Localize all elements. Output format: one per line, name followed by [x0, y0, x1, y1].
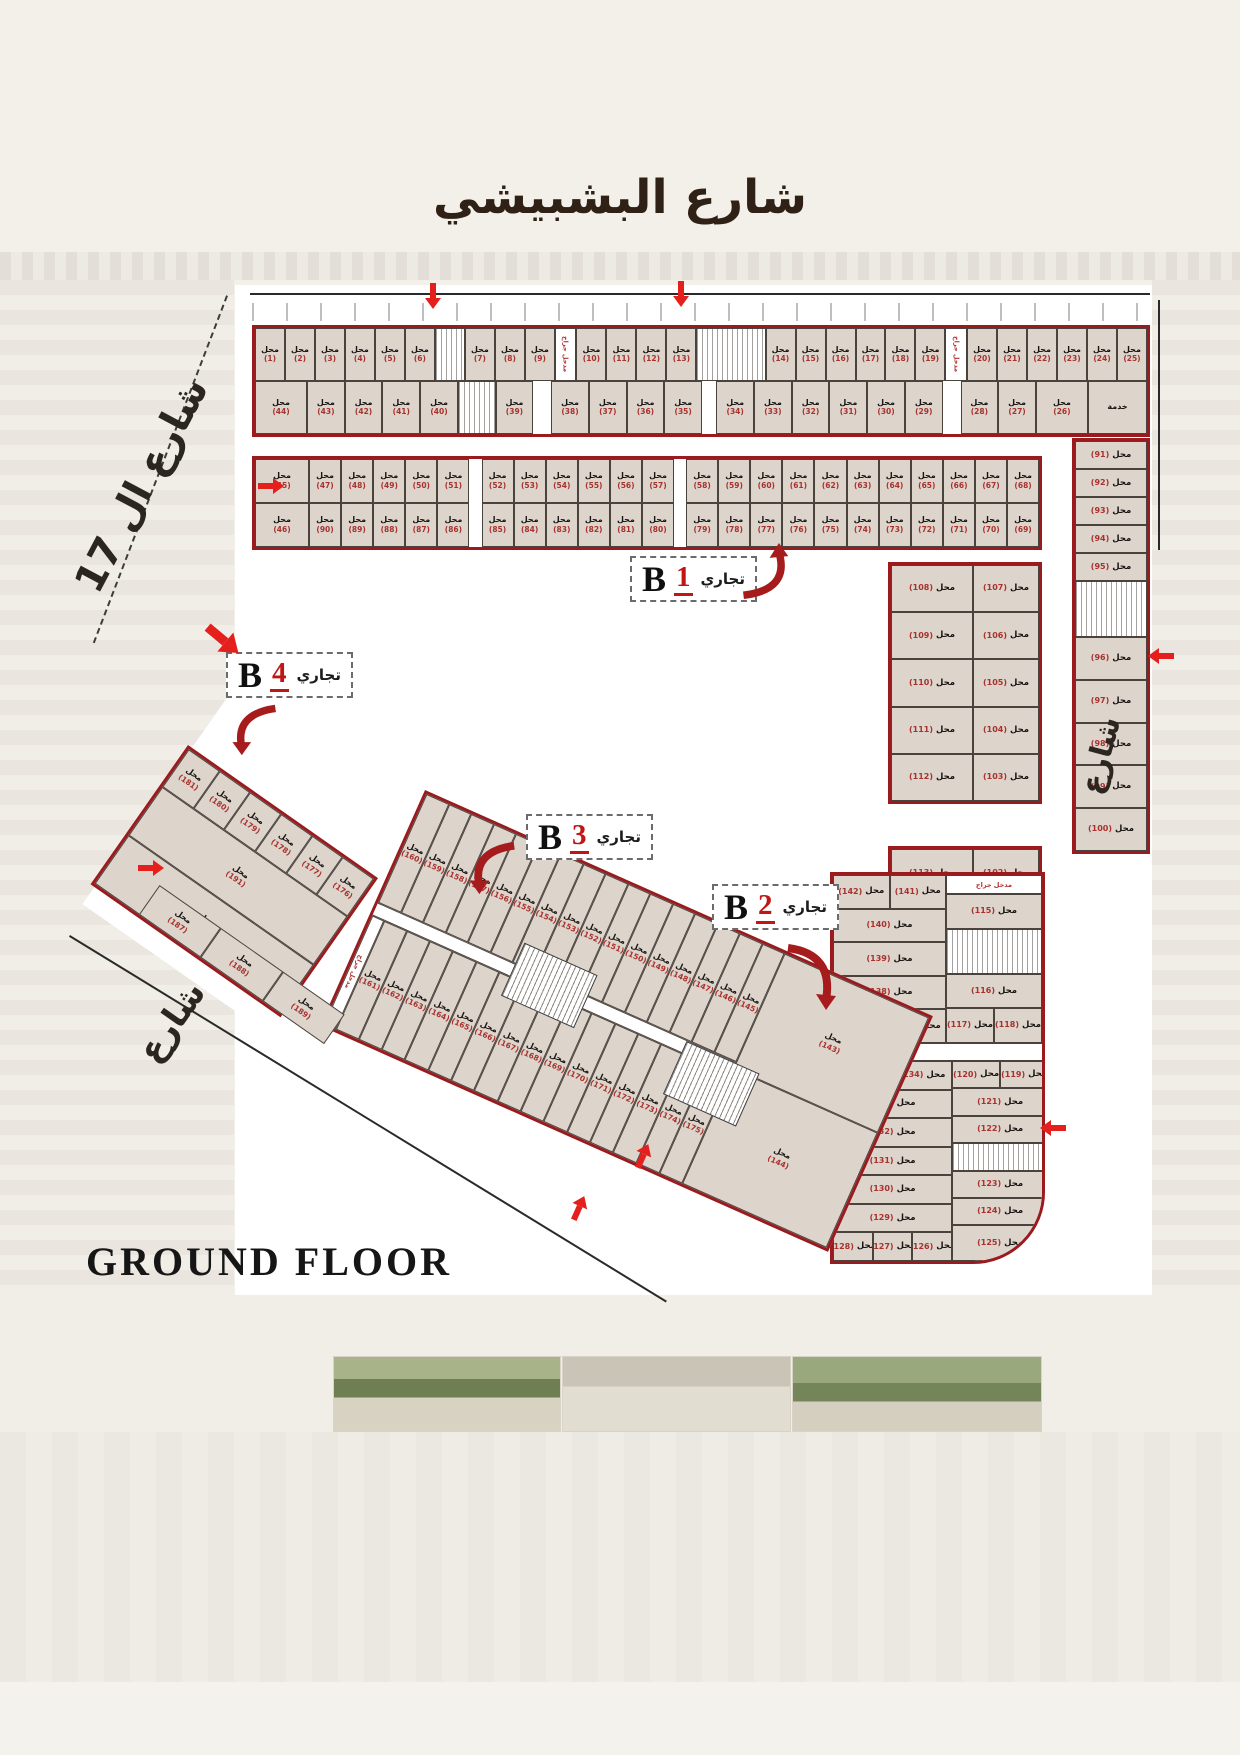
- shop-number: (9): [534, 355, 546, 363]
- shop-label: محل: [348, 516, 366, 524]
- shop-unit: محل(88): [373, 503, 405, 547]
- shop-label: محل: [982, 516, 1000, 524]
- shop-number: (90): [316, 526, 333, 534]
- shop-number: (142): [838, 888, 862, 896]
- shop-unit: (118)محل: [994, 1008, 1042, 1043]
- shop-number: (5): [384, 355, 396, 363]
- shop-label: محل: [317, 399, 335, 407]
- shop-number: (106): [983, 632, 1007, 640]
- shop-unit: (128)محل: [833, 1232, 873, 1261]
- shop-number: (109): [909, 632, 933, 640]
- shop-label: محل: [1014, 516, 1032, 524]
- shop-number: (34): [727, 408, 744, 416]
- shop-label: محل: [291, 346, 309, 354]
- shop-unit: محل(49): [373, 459, 405, 503]
- shop-label: محل: [392, 399, 410, 407]
- shop-number: (78): [726, 526, 743, 534]
- shop-unit: محل(32): [792, 381, 830, 434]
- shop-label: محل: [649, 516, 667, 524]
- shop-label: محل: [1093, 346, 1111, 354]
- shop-label: محل: [894, 955, 913, 964]
- shop-number: (56): [617, 482, 634, 490]
- strip-row: (140)محل: [833, 909, 946, 943]
- shop-number: (93): [1091, 507, 1109, 515]
- curved-arrow-icon: [782, 938, 842, 1012]
- shop-label: محل: [857, 1242, 873, 1251]
- shop-label: محل: [1033, 346, 1051, 354]
- shop-unit: (110)محل: [891, 659, 973, 706]
- shop-unit: محل(58): [686, 459, 718, 503]
- shop-unit: (115)محل: [946, 894, 1042, 929]
- shop-label: محل: [553, 472, 571, 480]
- shop-label: محل: [585, 516, 603, 524]
- strip-row: (110)محل(105)محل: [891, 659, 1039, 706]
- shop-unit: محل(34): [716, 381, 754, 434]
- shop-label: محل: [897, 1185, 916, 1194]
- shop-label: محل: [725, 516, 743, 524]
- block-number: 1: [674, 562, 693, 595]
- shop-number: (23): [1063, 355, 1080, 363]
- shop-number: (57): [649, 482, 666, 490]
- strip-row: (124)محل: [952, 1198, 1045, 1225]
- shop-number: (46): [273, 526, 290, 534]
- shop-number: (17): [862, 355, 879, 363]
- shop-label: محل: [1022, 1021, 1041, 1030]
- shop-unit: محل(12): [636, 328, 666, 381]
- shop-number: (80): [649, 526, 666, 534]
- shop-label: محل: [789, 516, 807, 524]
- shop-label: محل: [693, 472, 711, 480]
- shop-unit: محل(37): [589, 381, 627, 434]
- service-unit: خدمة: [1088, 381, 1147, 434]
- shop-unit: محل(59): [718, 459, 750, 503]
- shop-unit: محل(55): [578, 459, 610, 503]
- shop-unit: محل(43): [307, 381, 345, 434]
- strip-row: (139)محل: [833, 942, 946, 976]
- strip-row: مدخل جراج: [946, 875, 1042, 894]
- shop-label: محل: [489, 472, 507, 480]
- shop-label: محل: [854, 516, 872, 524]
- shop-unit: محل(75): [814, 503, 846, 547]
- shop-number: (15): [802, 355, 819, 363]
- block-b1-front-bar: محل(1)محل(2)محل(3)محل(4)محل(5)محل(6)محل(…: [252, 325, 1150, 437]
- shop-number: (108): [909, 584, 933, 592]
- shop-label: محل: [1004, 1239, 1023, 1248]
- footer-band: [0, 1682, 1240, 1755]
- shop-number: (52): [489, 482, 506, 490]
- shop-unit: محل(41): [382, 381, 420, 434]
- shop-number: (21): [1003, 355, 1020, 363]
- shop-label: محل: [617, 516, 635, 524]
- shop-unit: (108)محل: [891, 565, 973, 612]
- shop-unit: محل(64): [879, 459, 911, 503]
- shop-number: (126): [912, 1243, 933, 1251]
- shop-unit: محل(16): [826, 328, 856, 381]
- shop-number: (18): [892, 355, 909, 363]
- shop-label: محل: [936, 726, 955, 735]
- shop-number: (86): [445, 526, 462, 534]
- shop-number: (70): [982, 526, 999, 534]
- shop-number: (105): [983, 679, 1007, 687]
- shop-label: محل: [772, 346, 790, 354]
- shop-label: محل: [316, 516, 334, 524]
- entrance-arrow-icon: [258, 478, 284, 494]
- block-type: تجاري: [597, 828, 641, 846]
- shop-label: محل: [1123, 346, 1141, 354]
- street-name-top: شارع البشبيشي: [0, 170, 1240, 225]
- shop-number: (110): [909, 679, 933, 687]
- strip-row: (123)محل: [952, 1171, 1045, 1198]
- shop-unit: محل(70): [975, 503, 1007, 547]
- shop-label: محل: [936, 584, 955, 593]
- shop-label: محل: [918, 472, 936, 480]
- shop-unit: (93)محل: [1075, 497, 1147, 525]
- curved-arrow-icon: [462, 838, 520, 896]
- shop-number: (125): [977, 1239, 1001, 1247]
- shop-unit: (127)محل: [873, 1232, 913, 1261]
- shop-number: (54): [553, 482, 570, 490]
- strip-row: (94)محل: [1075, 525, 1147, 553]
- shop-label: محل: [444, 472, 462, 480]
- shop-number: (42): [355, 408, 372, 416]
- block-letter: B: [642, 561, 666, 597]
- shop-unit: محل(24): [1087, 328, 1117, 381]
- shop-number: (53): [521, 482, 538, 490]
- shop-number: (127): [873, 1243, 894, 1251]
- shop-unit: محل(56): [610, 459, 642, 503]
- shop-unit: محل(67): [975, 459, 1007, 503]
- open-gap: [674, 503, 686, 547]
- label-block-b4: B 4 تجاري: [226, 652, 353, 698]
- shop-number: (119): [1001, 1071, 1025, 1079]
- shop-number: (95): [1091, 563, 1109, 571]
- shop-unit: محل(79): [686, 503, 718, 547]
- stair-core: [435, 328, 465, 381]
- shop-number: (66): [950, 482, 967, 490]
- street-band-right: [1152, 280, 1240, 1340]
- shop-label: محل: [553, 516, 571, 524]
- shop-label: محل: [672, 346, 690, 354]
- shop-number: (22): [1033, 355, 1050, 363]
- shop-unit: محل(47): [309, 459, 341, 503]
- strip-row: [952, 1143, 1045, 1170]
- shop-number: (116): [971, 987, 995, 995]
- shop-label: محل: [674, 399, 692, 407]
- render-band: [0, 1432, 1240, 1682]
- strip-row: (117)محل(118)محل: [946, 1008, 1042, 1043]
- shop-unit: محل(89): [341, 503, 373, 547]
- shop-number: (49): [381, 482, 398, 490]
- shop-number: (94): [1091, 535, 1109, 543]
- shop-label: محل: [950, 472, 968, 480]
- entrance-arrow-icon: [673, 281, 689, 307]
- b2-bottom-right-rows: (120)محل(119)محل(121)محل(122)محل(123)محل…: [952, 1061, 1045, 1261]
- shop-label: محل: [974, 1021, 993, 1030]
- shop-number: (121): [977, 1098, 1001, 1106]
- shop-label: محل: [757, 516, 775, 524]
- strip-row: (108)محل(107)محل: [891, 565, 1039, 612]
- shop-unit: محل(5): [375, 328, 405, 381]
- stair-core: [696, 328, 765, 381]
- shop-number: (59): [726, 482, 743, 490]
- shop-unit: محل(50): [405, 459, 437, 503]
- shop-unit: (139)محل: [833, 942, 946, 976]
- shop-label: محل: [1004, 1207, 1023, 1216]
- shop-label: محل: [973, 346, 991, 354]
- strip-row: (120)محل(119)محل: [952, 1061, 1045, 1088]
- b2-top-right-rows: مدخل جراج(115)محل(116)محل(117)محل(118)مح…: [946, 875, 1042, 1043]
- shop-unit: محل(87): [405, 503, 437, 547]
- shop-label: محل: [471, 346, 489, 354]
- entrance-arrow-icon: [1148, 648, 1174, 664]
- shop-number: (89): [348, 526, 365, 534]
- shop-label: محل: [1112, 535, 1131, 544]
- shop-number: (2): [294, 355, 306, 363]
- shop-unit: محل(82): [578, 503, 610, 547]
- shop-number: (55): [585, 482, 602, 490]
- shop-unit: محل(13): [666, 328, 696, 381]
- shop-unit: (116)محل: [946, 974, 1042, 1009]
- shop-unit: محل(72): [911, 503, 943, 547]
- shop-number: (29): [915, 408, 932, 416]
- shop-unit: (95)محل: [1075, 553, 1147, 581]
- shop-unit: محل(19): [915, 328, 945, 381]
- shop-unit: محل(63): [847, 459, 879, 503]
- block-number: 2: [756, 890, 775, 923]
- block-number: 4: [270, 658, 289, 691]
- shop-label: محل: [894, 988, 913, 997]
- shop-label: محل: [877, 399, 895, 407]
- shop-number: (62): [822, 482, 839, 490]
- shop-unit: محل(38): [551, 381, 589, 434]
- shop-label: محل: [1004, 1125, 1023, 1134]
- shop-label: محل: [897, 1157, 916, 1166]
- shop-label: محل: [1010, 679, 1029, 688]
- shop-label: محل: [854, 472, 872, 480]
- shop-unit: محل(66): [943, 459, 975, 503]
- shop-label: محل: [599, 399, 617, 407]
- shop-unit: (140)محل: [833, 909, 946, 943]
- shop-unit: محل(40): [420, 381, 458, 434]
- shop-number: (82): [585, 526, 602, 534]
- shop-unit: محل(27): [998, 381, 1036, 434]
- shop-label: محل: [897, 1242, 913, 1251]
- shop-number: (124): [977, 1207, 1001, 1215]
- shop-number: (48): [348, 482, 365, 490]
- shop-label: محل: [272, 399, 290, 407]
- strip-row: (92)محل: [1075, 469, 1147, 497]
- strip-row: (112)محل(103)محل: [891, 754, 1039, 801]
- shop-number: (20): [973, 355, 990, 363]
- shop-label: محل: [412, 472, 430, 480]
- shop-unit: محل(8): [495, 328, 525, 381]
- shop-unit: محل(69): [1007, 503, 1039, 547]
- shop-number: (37): [599, 408, 616, 416]
- shop-unit: (94)محل: [1075, 525, 1147, 553]
- shop-label: محل: [637, 399, 655, 407]
- shop-number: (44): [272, 408, 289, 416]
- shop-unit: (141)محل: [890, 875, 947, 909]
- shop-label: محل: [802, 399, 820, 407]
- shop-unit: محل(86): [437, 503, 469, 547]
- shop-label: محل: [380, 516, 398, 524]
- shop-number: (103): [983, 773, 1007, 781]
- stair-core: [946, 929, 1042, 974]
- shop-unit: محل(84): [514, 503, 546, 547]
- shop-label: محل: [832, 346, 850, 354]
- shop-number: (122): [977, 1125, 1001, 1133]
- strip-row: محل(46): [255, 503, 309, 547]
- strip-row: (111)محل(104)محل: [891, 707, 1039, 754]
- open-gap: [702, 381, 716, 434]
- shop-unit: محل(2): [285, 328, 315, 381]
- open-gap: [469, 503, 481, 547]
- strip-row: (115)محل: [946, 894, 1042, 929]
- shop-label: محل: [1112, 563, 1131, 572]
- shop-label: محل: [1112, 782, 1131, 791]
- shop-label: محل: [1063, 346, 1081, 354]
- shop-number: (100): [1088, 825, 1112, 833]
- shop-unit: محل(1): [255, 328, 285, 381]
- shop-unit: (96)محل: [1075, 637, 1147, 680]
- shop-label: محل: [950, 516, 968, 524]
- shop-number: (115): [971, 907, 995, 915]
- shop-unit: محل(81): [610, 503, 642, 547]
- shop-unit: محل(73): [879, 503, 911, 547]
- shop-unit: (142)محل: [833, 875, 890, 909]
- shop-unit: محل(48): [341, 459, 373, 503]
- strip-row: (129)محل: [833, 1204, 952, 1233]
- shop-unit: محل(60): [750, 459, 782, 503]
- shop-label: محل: [348, 472, 366, 480]
- shop-unit: (105)محل: [973, 659, 1039, 706]
- shop-number: (120): [953, 1071, 977, 1079]
- shop-unit: (123)محل: [952, 1171, 1045, 1198]
- shop-number: (85): [489, 526, 506, 534]
- shop-number: (117): [947, 1021, 971, 1029]
- shop-unit: محل(30): [867, 381, 905, 434]
- shop-label: محل: [726, 399, 744, 407]
- shop-label: محل: [501, 346, 519, 354]
- shop-label: محل: [789, 472, 807, 480]
- shop-unit: محل(52): [482, 459, 514, 503]
- shop-label: محل: [521, 472, 539, 480]
- shop-number: (68): [1014, 482, 1031, 490]
- shop-number: (11): [613, 355, 630, 363]
- shop-number: (81): [617, 526, 634, 534]
- shop-unit: محل(57): [642, 459, 674, 503]
- shop-number: (36): [637, 408, 654, 416]
- shop-number: (128): [833, 1243, 854, 1251]
- shop-unit: (112)محل: [891, 754, 973, 801]
- shop-number: (1): [264, 355, 276, 363]
- curved-arrow-icon: [736, 540, 792, 602]
- shop-unit: (126)محل: [912, 1232, 952, 1261]
- block-letter: B: [538, 819, 562, 855]
- shop-label: محل: [886, 516, 904, 524]
- shop-number: (50): [413, 482, 430, 490]
- shop-label: محل: [617, 472, 635, 480]
- block-type: تجاري: [783, 898, 827, 916]
- shop-label: محل: [506, 399, 524, 407]
- shop-unit: محل(54): [546, 459, 578, 503]
- shop-label: محل: [822, 472, 840, 480]
- shop-unit: (121)محل: [952, 1088, 1045, 1115]
- shop-unit: محل(10): [576, 328, 606, 381]
- shop-label: محل: [521, 516, 539, 524]
- shop-number: (33): [764, 408, 781, 416]
- shop-unit: محل(42): [345, 381, 383, 434]
- shop-number: (13): [673, 355, 690, 363]
- shop-unit: محل(62): [814, 459, 846, 503]
- shop-label: محل: [1112, 479, 1131, 488]
- shop-label: محل: [261, 346, 279, 354]
- shop-unit: محل(90): [309, 503, 341, 547]
- shop-label: محل: [897, 1099, 916, 1108]
- shop-number: (88): [381, 526, 398, 534]
- shop-number: (83): [553, 526, 570, 534]
- shop-label: محل: [936, 773, 955, 782]
- shop-number: (60): [758, 482, 775, 490]
- garage-entrance-label: مدخل جراج: [945, 328, 967, 381]
- shop-label: محل: [1053, 399, 1071, 407]
- entrance-arrow-icon: [138, 860, 164, 876]
- shop-number: (16): [832, 355, 849, 363]
- shop-unit: محل(3): [315, 328, 345, 381]
- shop-label: محل: [982, 472, 1000, 480]
- shop-label: محل: [822, 516, 840, 524]
- shop-label: محل: [865, 887, 884, 896]
- shop-label: محل: [489, 516, 507, 524]
- shop-label: محل: [757, 472, 775, 480]
- shop-number: (28): [971, 408, 988, 416]
- shop-label: محل: [802, 346, 820, 354]
- shop-label: محل: [1112, 451, 1131, 460]
- shop-label: محل: [892, 346, 910, 354]
- shop-number: (139): [867, 955, 891, 963]
- shop-number: (61): [790, 482, 807, 490]
- shop-unit: محل(20): [967, 328, 997, 381]
- b1-shop-row-3: محل(47)محل(48)محل(49)محل(50)محل(51)محل(5…: [309, 459, 1039, 503]
- floor-plan-canvas: شارع البشبيشي شارع ال 17 شارع شارع GROUN…: [0, 0, 1240, 1755]
- shop-unit: محل(7): [465, 328, 495, 381]
- garage-entrance-text: مدخل جراج: [952, 336, 960, 372]
- shop-unit: (129)محل: [833, 1204, 952, 1233]
- strip-row: (96)محل: [1075, 637, 1147, 680]
- stair-core: [458, 381, 496, 434]
- shop-unit: محل(15): [796, 328, 826, 381]
- shop-label: محل: [1003, 346, 1021, 354]
- shop-label: محل: [642, 346, 660, 354]
- entrance-arrow-icon: [1040, 1120, 1066, 1136]
- shop-unit: محل(26): [1036, 381, 1088, 434]
- shop-label: محل: [922, 346, 940, 354]
- block-type: تجاري: [297, 666, 341, 684]
- shop-unit: محل(46): [255, 503, 309, 547]
- block-b1-wing-upper: (108)محل(107)محل(109)محل(106)محل(110)محل…: [888, 562, 1042, 804]
- shop-unit: (103)محل: [973, 754, 1039, 801]
- shop-label: محل: [1115, 825, 1134, 834]
- shop-number: (72): [918, 526, 935, 534]
- label-block-b3: B 3 تجاري: [526, 814, 653, 860]
- garage-entrance-label: مدخل جراج: [946, 875, 1042, 894]
- shop-unit: محل(28): [961, 381, 999, 434]
- shop-label: محل: [351, 346, 369, 354]
- b1-shop-row-4: محل(90)محل(89)محل(88)محل(87)محل(86)محل(8…: [309, 503, 1039, 547]
- shop-label: محل: [585, 472, 603, 480]
- shop-number: (67): [982, 482, 999, 490]
- shop-number: (32): [802, 408, 819, 416]
